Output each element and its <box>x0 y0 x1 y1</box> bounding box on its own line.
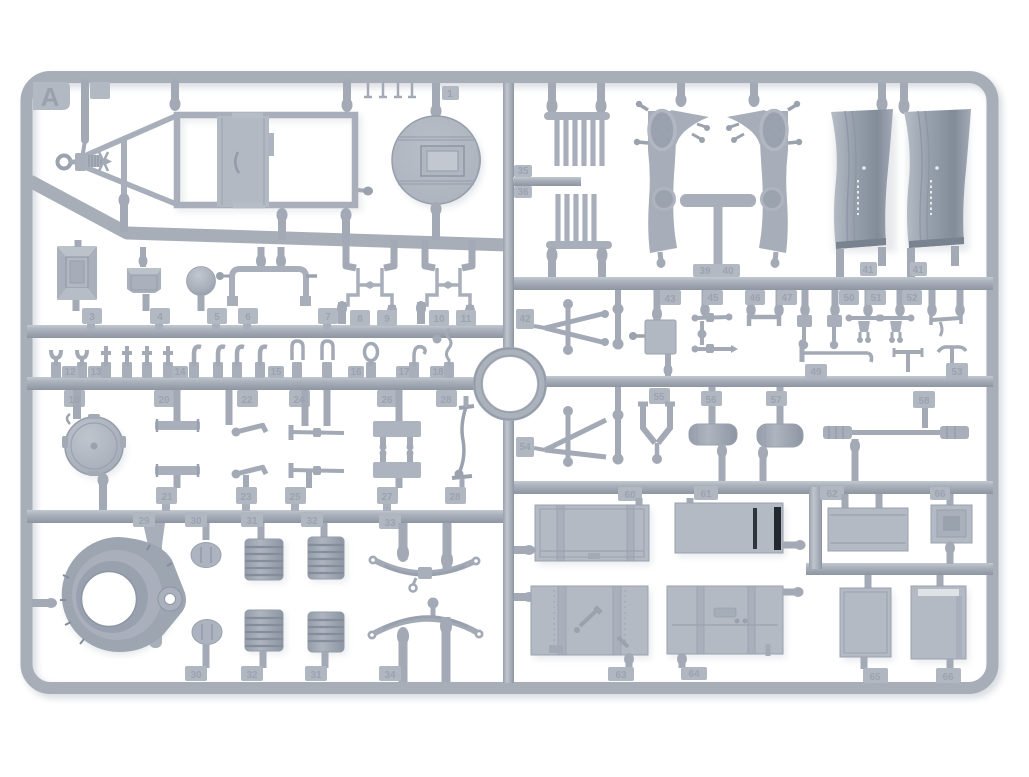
svg-text:39: 39 <box>699 266 711 277</box>
svg-text:32: 32 <box>306 516 318 527</box>
svg-text:5: 5 <box>214 312 220 323</box>
svg-text:46: 46 <box>749 293 761 304</box>
svg-text:29: 29 <box>138 516 150 527</box>
svg-text:6: 6 <box>245 312 251 323</box>
svg-text:28: 28 <box>440 395 452 406</box>
svg-text:54: 54 <box>519 442 531 453</box>
svg-text:34: 34 <box>384 670 396 681</box>
svg-text:40: 40 <box>722 266 734 277</box>
svg-text:53: 53 <box>951 367 963 378</box>
svg-text:12: 12 <box>64 367 76 378</box>
svg-text:10: 10 <box>433 314 445 325</box>
svg-text:43: 43 <box>664 294 676 305</box>
svg-text:22: 22 <box>241 395 253 406</box>
svg-text:50: 50 <box>843 293 855 304</box>
svg-text:27: 27 <box>381 492 393 503</box>
svg-text:A: A <box>41 82 60 112</box>
svg-text:32: 32 <box>246 670 258 681</box>
svg-text:45: 45 <box>707 293 719 304</box>
svg-text:30: 30 <box>190 516 202 527</box>
svg-text:33: 33 <box>384 518 396 529</box>
svg-text:57: 57 <box>770 395 782 406</box>
svg-text:60: 60 <box>624 490 636 501</box>
svg-text:24: 24 <box>293 395 305 406</box>
svg-text:47: 47 <box>781 293 793 304</box>
svg-text:49: 49 <box>810 367 822 378</box>
svg-text:30: 30 <box>190 670 202 681</box>
svg-text:66: 66 <box>934 489 946 500</box>
svg-text:26: 26 <box>381 395 393 406</box>
svg-text:41: 41 <box>912 265 924 276</box>
svg-text:31: 31 <box>310 670 322 681</box>
svg-text:66: 66 <box>942 672 954 683</box>
svg-text:31: 31 <box>246 516 258 527</box>
svg-text:36: 36 <box>517 187 529 198</box>
svg-text:52: 52 <box>906 293 918 304</box>
svg-text:51: 51 <box>870 293 882 304</box>
svg-text:41: 41 <box>862 265 874 276</box>
svg-text:56: 56 <box>705 395 717 406</box>
svg-text:58: 58 <box>918 396 930 407</box>
svg-text:23: 23 <box>240 492 252 503</box>
svg-text:19: 19 <box>68 395 80 406</box>
svg-text:1: 1 <box>447 89 453 100</box>
svg-text:21: 21 <box>161 492 173 503</box>
svg-text:35: 35 <box>517 166 529 177</box>
svg-text:13: 13 <box>90 367 102 378</box>
svg-text:28: 28 <box>449 492 461 503</box>
svg-text:65: 65 <box>869 672 881 683</box>
svg-text:62: 62 <box>826 489 838 500</box>
svg-text:14: 14 <box>174 367 186 378</box>
svg-text:18: 18 <box>432 367 444 378</box>
svg-text:15: 15 <box>270 367 282 378</box>
svg-text:17: 17 <box>398 367 410 378</box>
svg-text:16: 16 <box>350 367 362 378</box>
svg-text:11: 11 <box>461 314 472 325</box>
svg-text:61: 61 <box>700 489 712 500</box>
svg-text:55: 55 <box>653 392 665 403</box>
svg-text:3: 3 <box>89 312 95 323</box>
svg-text:8: 8 <box>357 314 363 325</box>
svg-text:63: 63 <box>615 670 627 681</box>
svg-text:25: 25 <box>289 492 301 503</box>
svg-text:42: 42 <box>519 314 531 325</box>
svg-text:7: 7 <box>325 312 331 323</box>
svg-text:4: 4 <box>157 312 163 323</box>
svg-text:9: 9 <box>384 314 390 325</box>
svg-text:20: 20 <box>158 395 170 406</box>
svg-text:64: 64 <box>688 669 700 680</box>
